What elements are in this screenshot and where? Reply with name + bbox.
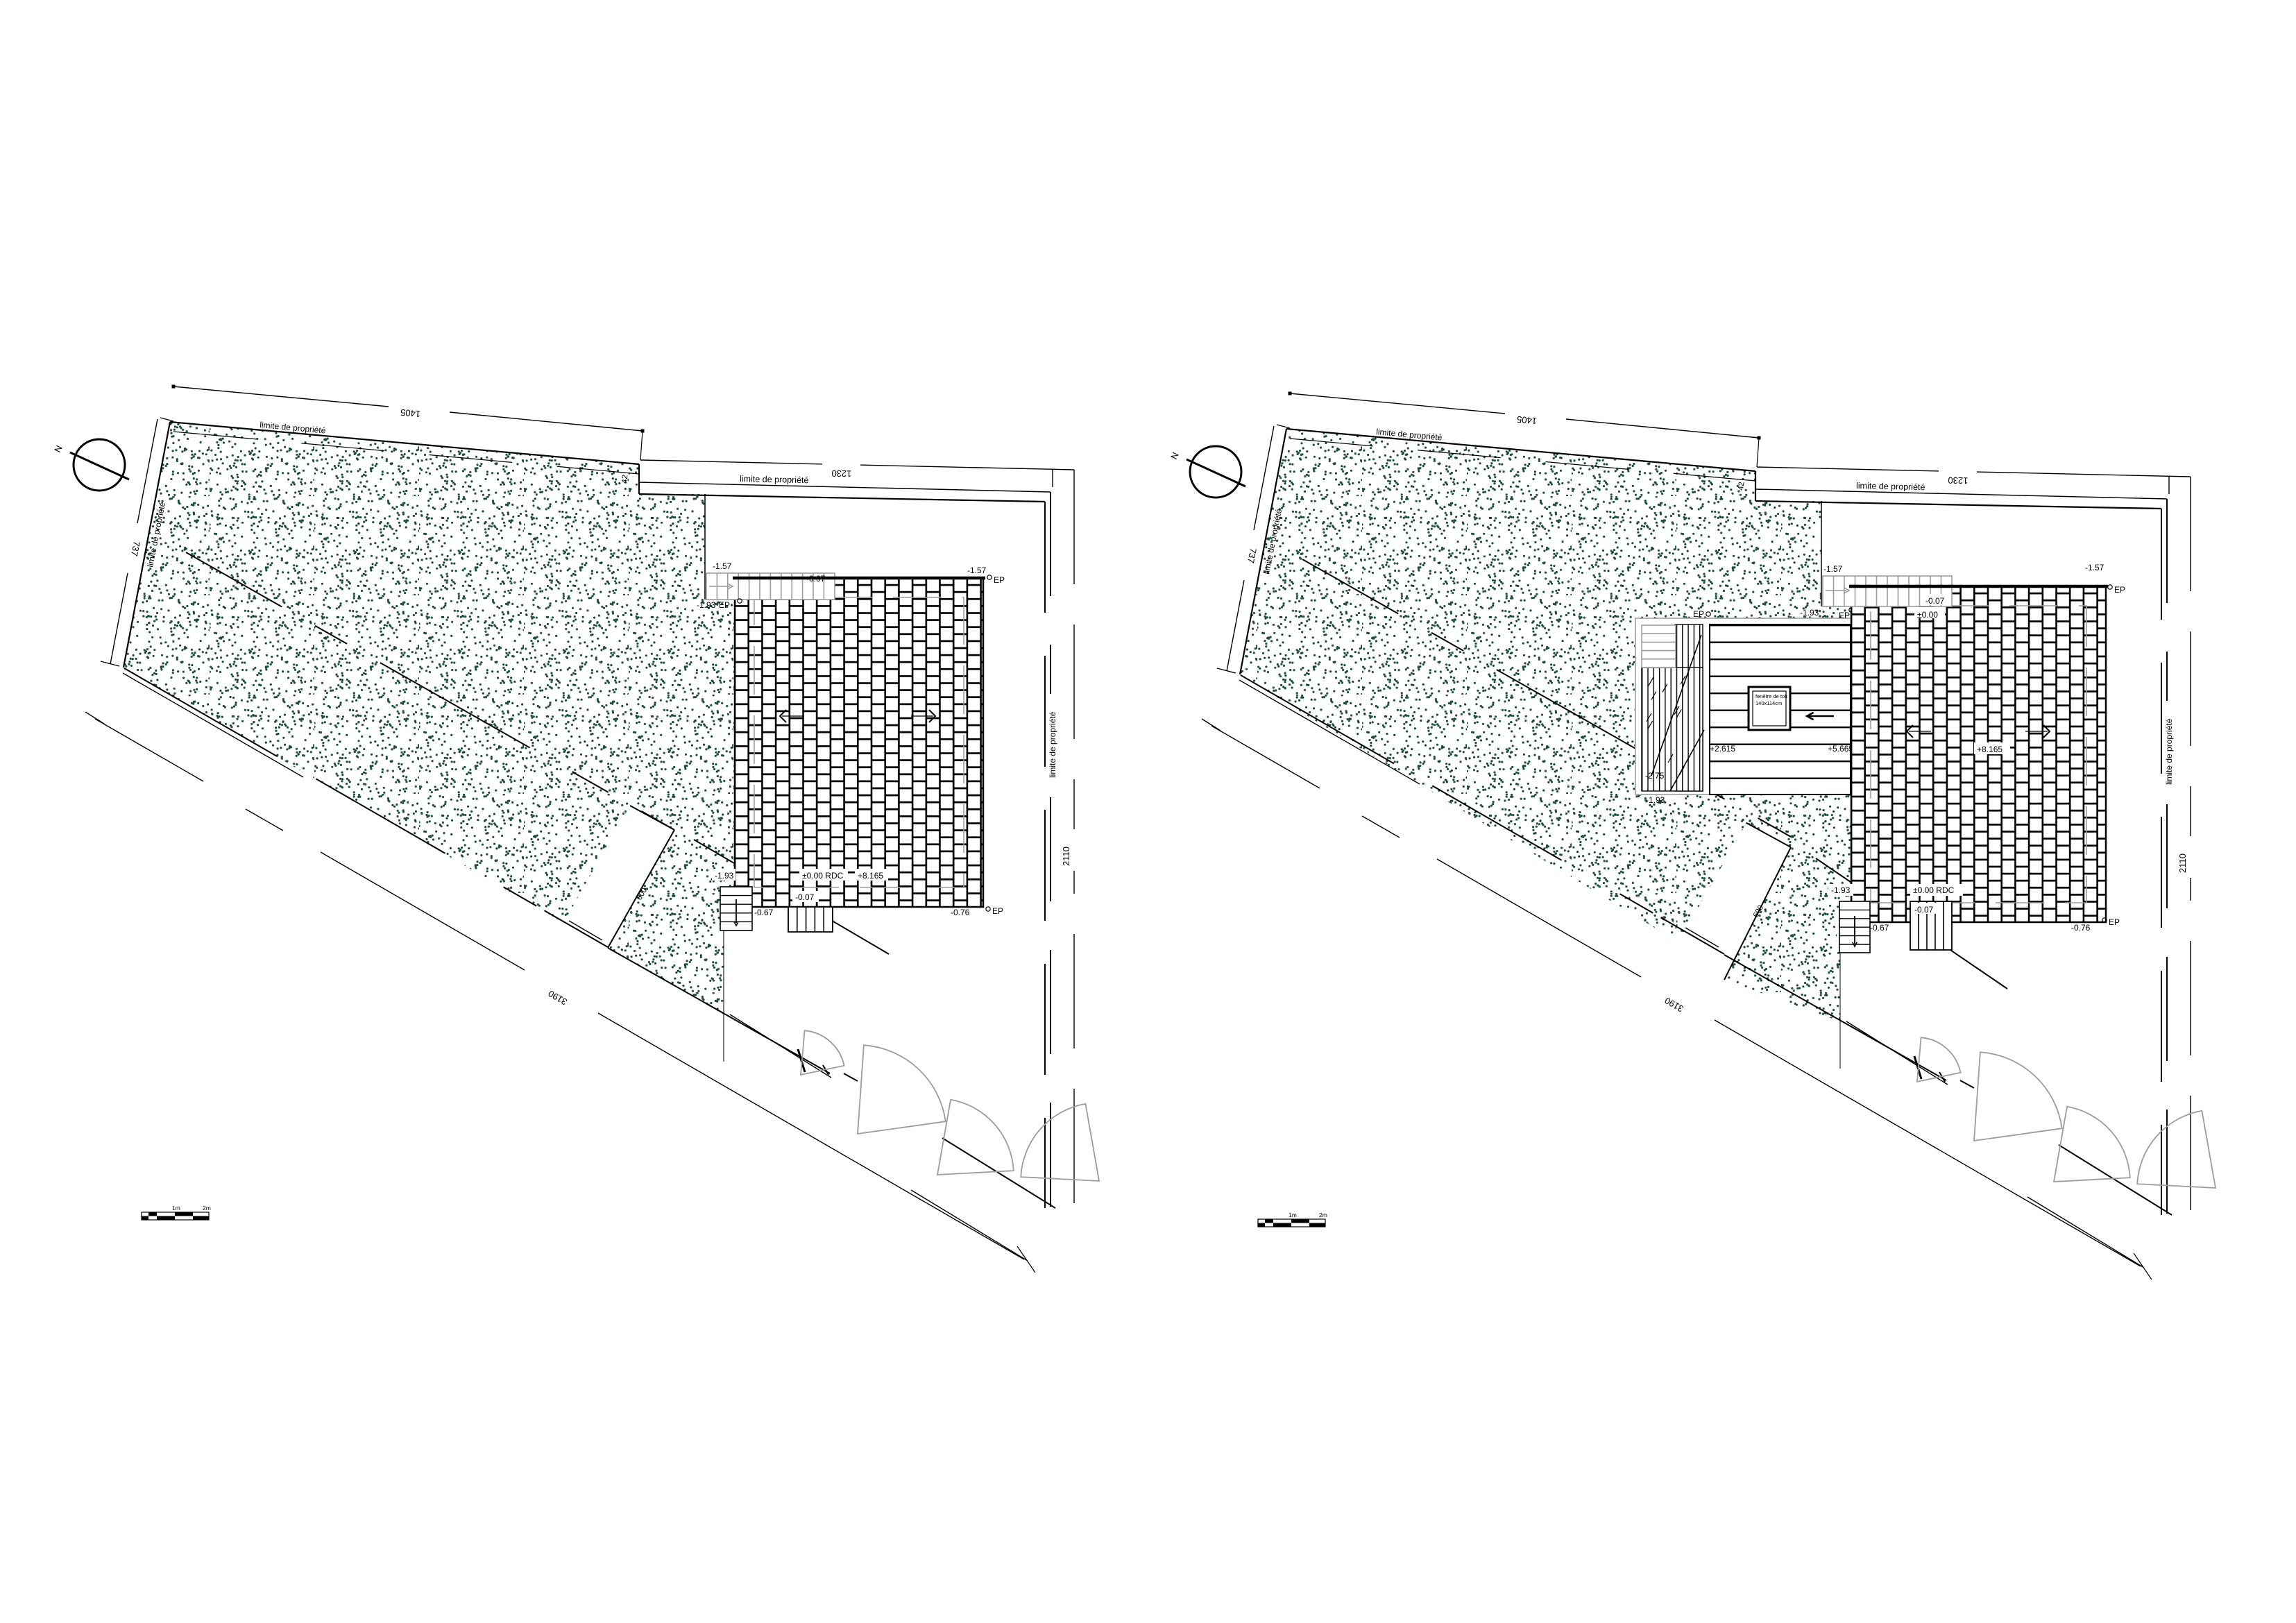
svg-text:2m: 2m [203, 1205, 211, 1212]
svg-text:±0.00 RDC: ±0.00 RDC [1913, 885, 1955, 895]
svg-text:fenêtre de toit: fenêtre de toit [1755, 693, 1788, 699]
svg-text:1230: 1230 [831, 468, 851, 479]
svg-text:-0.76: -0.76 [951, 908, 970, 917]
svg-text:2m: 2m [1319, 1212, 1327, 1218]
svg-text:EP: EP [992, 906, 1003, 916]
svg-text:42: 42 [620, 475, 629, 484]
svg-text:-0.07: -0.07 [806, 574, 826, 584]
svg-text:-1.57: -1.57 [967, 566, 987, 575]
svg-text:-1.57: -1.57 [1823, 564, 1843, 574]
svg-text:2110: 2110 [2177, 853, 2188, 873]
svg-text:limite de propriété: limite de propriété [1856, 481, 1925, 492]
svg-text:2110: 2110 [1061, 847, 1071, 866]
svg-text:EP: EP [719, 600, 730, 610]
svg-text:EP: EP [2114, 585, 2125, 595]
svg-text:1230: 1230 [1948, 475, 1968, 486]
svg-text:+8.165: +8.165 [1977, 745, 2002, 754]
svg-text:-0.76: -0.76 [2071, 923, 2091, 933]
svg-text:-1.57: -1.57 [2085, 563, 2104, 572]
svg-text:-1.93: -1.93 [1646, 795, 1665, 805]
svg-text:1405: 1405 [1516, 414, 1537, 427]
svg-text:EP: EP [2109, 917, 2120, 927]
svg-text:140x114cm: 140x114cm [1755, 700, 1782, 706]
svg-text:-2.75: -2.75 [1645, 771, 1665, 781]
svg-text:1m: 1m [172, 1205, 180, 1212]
svg-text:1405: 1405 [400, 407, 420, 420]
svg-text:±0.00 RDC: ±0.00 RDC [802, 871, 844, 881]
svg-text:EP: EP [1693, 609, 1704, 619]
svg-text:-0.67: -0.67 [754, 908, 774, 917]
svg-text:+8.165: +8.165 [858, 871, 883, 881]
svg-text:-1.93: -1.93 [697, 600, 716, 610]
svg-text:±0.00: ±0.00 [1917, 610, 1938, 620]
svg-text:-0.07: -0.07 [1925, 596, 1945, 606]
svg-text:+5.665: +5.665 [1828, 744, 1853, 754]
svg-text:-0.07: -0.07 [795, 892, 815, 902]
svg-text:-1.93: -1.93 [715, 871, 734, 881]
svg-text:EP: EP [1839, 611, 1850, 620]
svg-text:limite de propriété: limite de propriété [1048, 711, 1057, 778]
svg-text:-1.93: -1.93 [1800, 608, 1819, 618]
svg-text:limite de propriété: limite de propriété [2164, 718, 2174, 785]
svg-text:EP: EP [994, 575, 1005, 585]
svg-text:-1.57: -1.57 [713, 561, 732, 571]
svg-text:42: 42 [1737, 482, 1746, 491]
svg-text:limite de propriété: limite de propriété [740, 474, 809, 485]
svg-text:-0.67: -0.67 [1870, 923, 1889, 933]
svg-text:-1.93: -1.93 [1831, 885, 1851, 895]
svg-text:-0.07: -0.07 [1914, 905, 1934, 915]
svg-text:+2.615: +2.615 [1710, 744, 1735, 754]
svg-text:1m: 1m [1289, 1212, 1297, 1218]
